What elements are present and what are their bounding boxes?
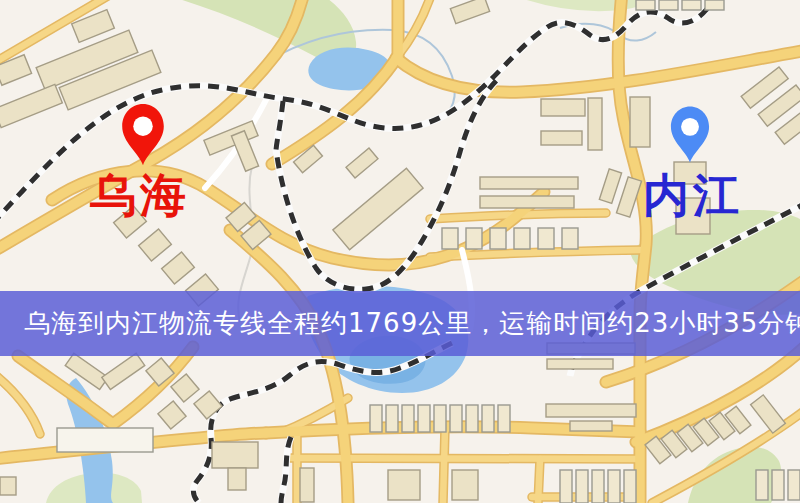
destination-pin[interactable] (666, 103, 714, 165)
route-info-text: 乌海到内江物流专线全程约1769公里，运输时间约23小时35分钟. (24, 306, 800, 341)
map-image[interactable] (0, 0, 800, 503)
map-pin-icon (666, 103, 714, 165)
map-screenshot: 乌海 内江 乌海到内江物流专线全程约1769公里，运输时间约23小时35分钟. (0, 0, 800, 503)
origin-label: 乌海 (90, 172, 190, 218)
destination-label: 内江 (643, 172, 743, 218)
map-pin-icon (117, 100, 169, 168)
origin-pin[interactable] (117, 100, 169, 168)
info-banner: 乌海到内江物流专线全程约1769公里，运输时间约23小时35分钟. (0, 291, 800, 356)
